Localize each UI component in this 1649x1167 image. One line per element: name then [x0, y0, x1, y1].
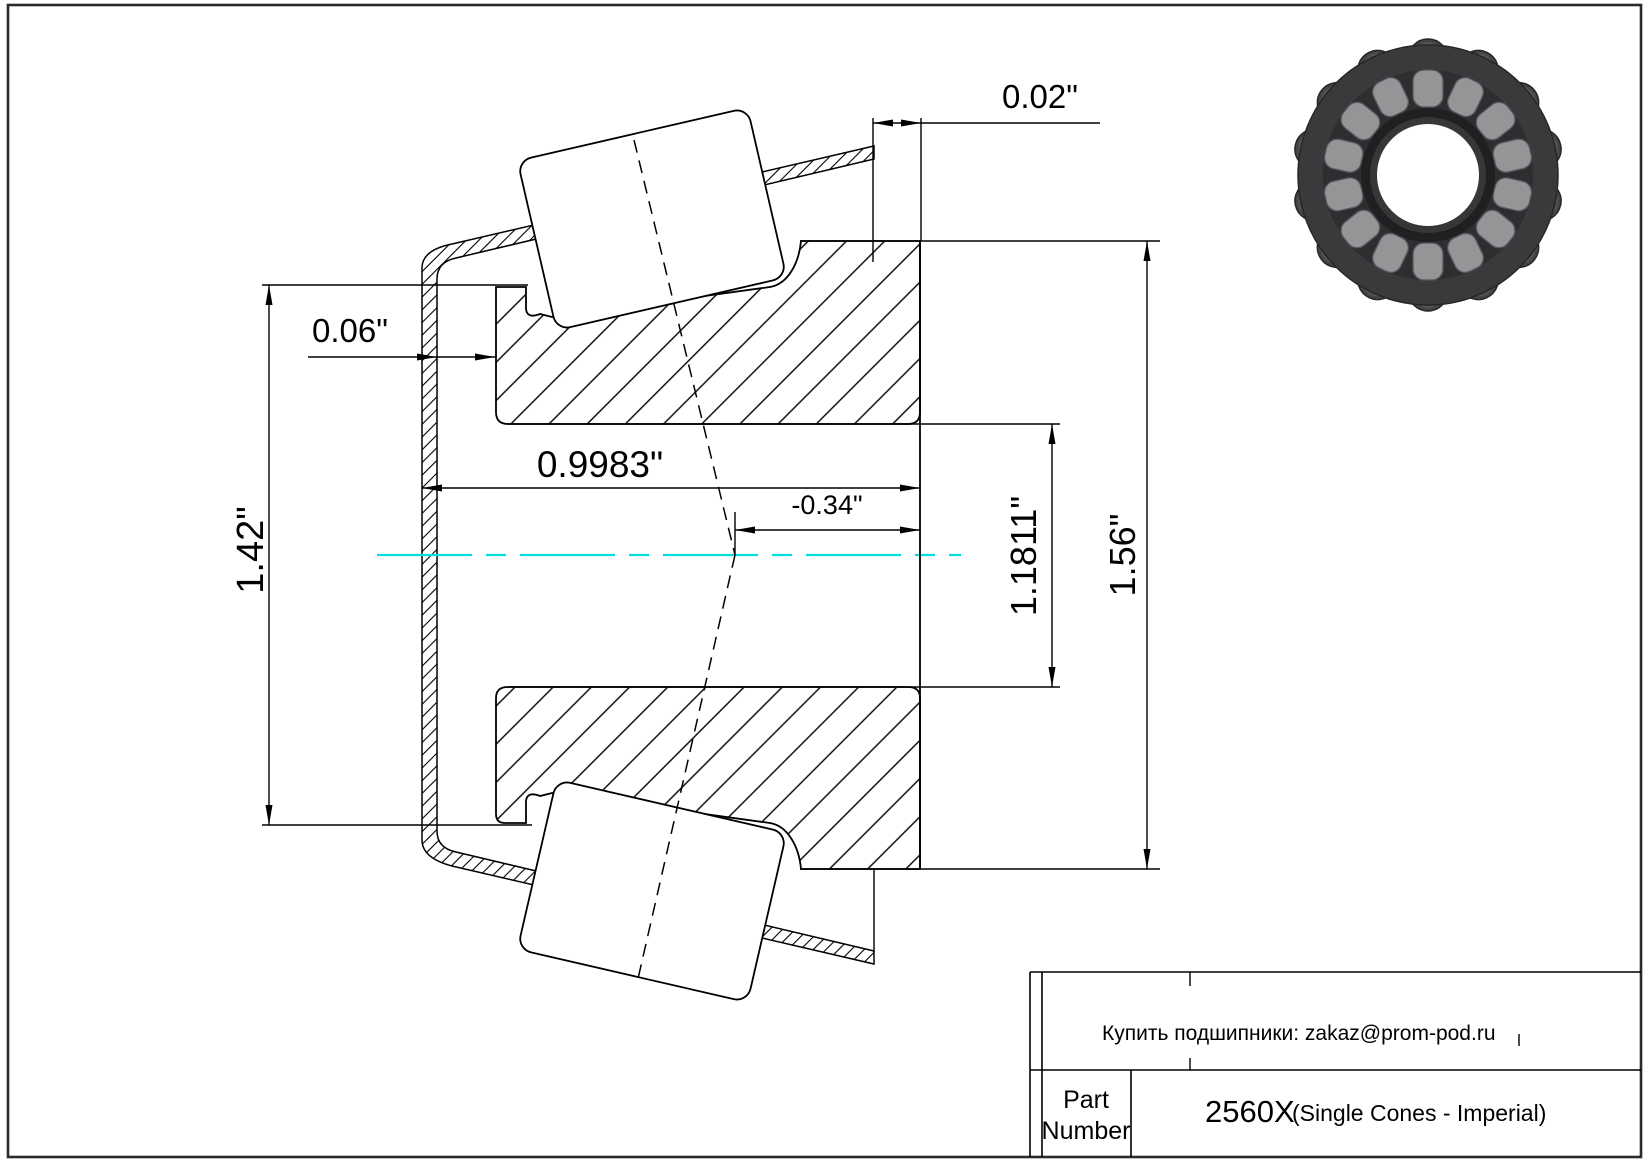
part-number-value: 2560X — [1205, 1094, 1295, 1129]
series-note: (Single Cones - Imperial) — [1292, 1100, 1546, 1126]
part-label-line1: Part — [1063, 1086, 1109, 1114]
dim-effective-center-label: -0.34" — [791, 490, 862, 520]
drawing-canvas: 0.02" 0.06" 0.9983" -0.34" 1.42" 1.1811"… — [0, 0, 1649, 1167]
dim-backface-offset-label: 0.06" — [312, 312, 388, 349]
bearing-photo — [1291, 39, 1565, 311]
drawing-sheet: 0.02" 0.06" 0.9983" -0.34" 1.42" 1.1811"… — [0, 0, 1649, 1167]
dim-rib-diameter-label: 1.42" — [230, 506, 272, 593]
dim-outer-diameter-label: 1.56" — [1102, 514, 1143, 597]
part-label-line2: Number — [1042, 1117, 1131, 1145]
dim-cage-clearance-label: 0.02" — [1002, 78, 1078, 115]
dim-bore-diameter-label: 1.1811" — [1003, 496, 1044, 616]
supplier-note: Купить подшипники: zakaz@prom-pod.ru — [1102, 1022, 1496, 1045]
dim-bore-width-label: 0.9983" — [537, 444, 663, 485]
bearing-bore-hole — [1377, 124, 1479, 226]
